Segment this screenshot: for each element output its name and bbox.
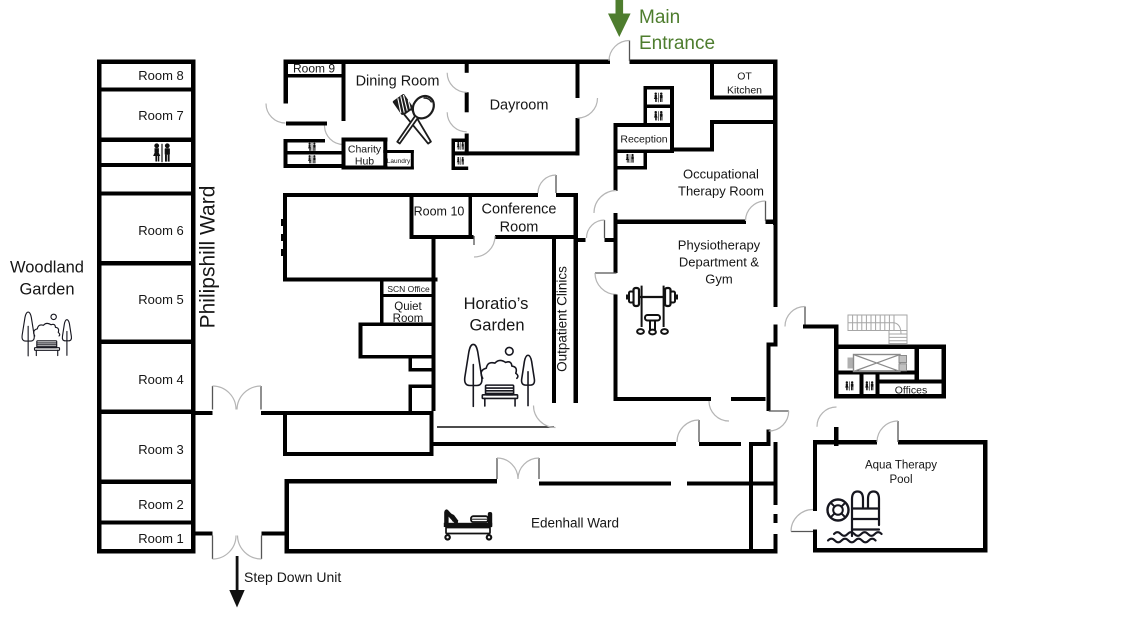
svg-text:Department &: Department & <box>679 255 760 270</box>
svg-text:Room: Room <box>500 220 539 236</box>
svg-text:Dayroom: Dayroom <box>490 98 549 114</box>
svg-text:Laundry: Laundry <box>387 158 411 165</box>
svg-text:Aqua Therapy: Aqua Therapy <box>865 460 937 472</box>
svg-text:Therapy Room: Therapy Room <box>678 184 764 199</box>
svg-text:Garden: Garden <box>19 281 74 299</box>
svg-text:Reception: Reception <box>620 134 667 146</box>
svg-text:Edenhall Ward: Edenhall Ward <box>531 516 619 531</box>
svg-text:Dining Room: Dining Room <box>356 74 440 90</box>
svg-text:SCN Office: SCN Office <box>387 284 430 294</box>
svg-text:Step Down Unit: Step Down Unit <box>244 569 341 585</box>
svg-text:Room 5: Room 5 <box>138 292 184 307</box>
svg-text:Room 7: Room 7 <box>138 108 184 123</box>
svg-text:Outpatient Clinics: Outpatient Clinics <box>555 266 570 372</box>
svg-text:Room 10: Room 10 <box>414 205 465 219</box>
svg-text:Room 9: Room 9 <box>293 62 335 76</box>
svg-text:Room 4: Room 4 <box>138 372 184 387</box>
svg-text:Physiotherapy: Physiotherapy <box>678 238 761 253</box>
svg-text:Charity: Charity <box>348 144 382 156</box>
svg-text:Horatio’s: Horatio’s <box>464 295 529 313</box>
svg-text:Garden: Garden <box>469 317 524 335</box>
svg-text:Conference: Conference <box>482 202 557 218</box>
svg-text:Entrance: Entrance <box>639 33 715 54</box>
svg-text:Kitchen: Kitchen <box>727 85 762 97</box>
svg-text:Quiet: Quiet <box>394 301 422 313</box>
svg-text:Gym: Gym <box>705 272 732 287</box>
svg-text:Occupational: Occupational <box>683 167 759 182</box>
svg-text:Room 6: Room 6 <box>138 223 184 238</box>
svg-text:Hub: Hub <box>355 156 374 168</box>
svg-text:Woodland: Woodland <box>10 259 84 277</box>
svg-text:Philipshill Ward: Philipshill Ward <box>197 186 220 329</box>
svg-text:Main: Main <box>639 7 680 28</box>
svg-text:Room: Room <box>393 313 424 325</box>
svg-text:Room 3: Room 3 <box>138 442 184 457</box>
svg-text:Room 8: Room 8 <box>138 68 184 83</box>
svg-text:OT: OT <box>737 71 752 83</box>
svg-text:Pool: Pool <box>889 474 912 486</box>
svg-text:Offices: Offices <box>895 385 927 397</box>
svg-text:Room 2: Room 2 <box>138 497 184 512</box>
svg-text:Room 1: Room 1 <box>138 531 184 546</box>
